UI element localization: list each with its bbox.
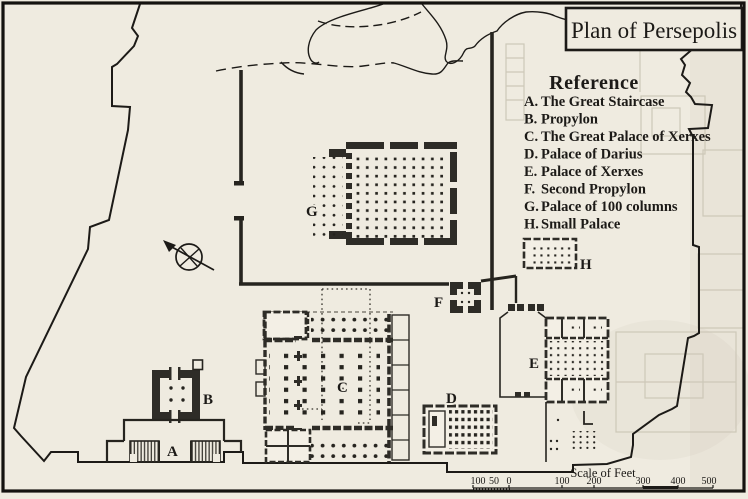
label-c: C <box>337 380 348 396</box>
scale-tick-50l: 50 <box>489 476 499 487</box>
ref-key-c: C. <box>524 129 538 145</box>
building-h-small-palace <box>524 239 576 268</box>
building-g-palace-100-columns <box>313 142 457 245</box>
persepolis-plan-svg: A B C D E F G H Plan of Persepolis Refer… <box>0 0 748 499</box>
page-title: Plan of Persepolis <box>571 18 737 43</box>
ref-key-b: B. <box>524 112 537 128</box>
label-h: H <box>580 257 592 273</box>
scale-caption: Scale of Feet <box>570 466 636 480</box>
ref-label-g: Palace of 100 columns <box>541 199 678 215</box>
label-d: D <box>446 391 457 407</box>
label-b: B <box>203 392 213 408</box>
ref-label-b: Propylon <box>541 112 598 128</box>
building-d-palace-of-darius <box>424 406 496 453</box>
ref-key-f: F. <box>524 182 535 198</box>
scale-tick-500: 500 <box>702 476 717 487</box>
ref-label-e: Palace of Xerxes <box>541 164 644 180</box>
ref-key-e: E. <box>524 164 537 180</box>
ref-key-h: H. <box>524 217 539 233</box>
reference-heading: Reference <box>549 72 639 94</box>
label-g: G <box>306 204 318 220</box>
ref-label-c: The Great Palace of Xerxes <box>541 129 711 145</box>
ref-label-d: Palace of Darius <box>541 147 643 163</box>
plan-of-persepolis-page: A B C D E F G H Plan of Persepolis Refer… <box>0 0 748 499</box>
ref-label-f: Second Propylon <box>541 182 646 198</box>
ref-label-h: Small Palace <box>541 217 621 233</box>
label-a: A <box>167 444 178 460</box>
label-f: F <box>434 295 443 311</box>
ref-key-d: D. <box>524 147 538 163</box>
ref-label-a: The Great Staircase <box>541 94 665 110</box>
title-box: Plan of Persepolis <box>566 8 742 50</box>
ref-key-a: A. <box>524 94 538 110</box>
ref-key-g: G. <box>524 199 539 215</box>
label-e: E <box>529 356 539 372</box>
